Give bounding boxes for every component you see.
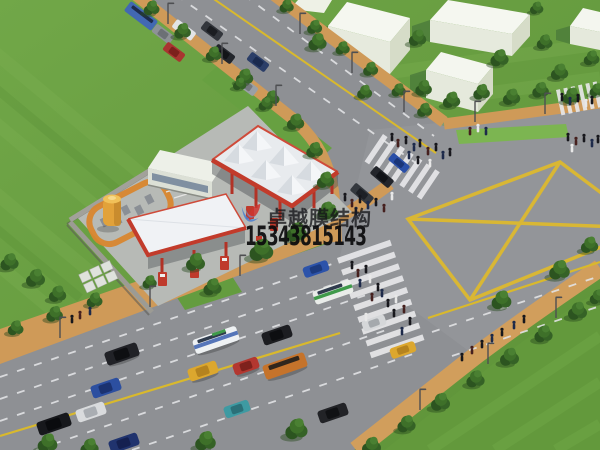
site-plan-render [0,0,600,450]
architectural-rendering: 卓越膜结构 15343815143 [0,0,600,450]
